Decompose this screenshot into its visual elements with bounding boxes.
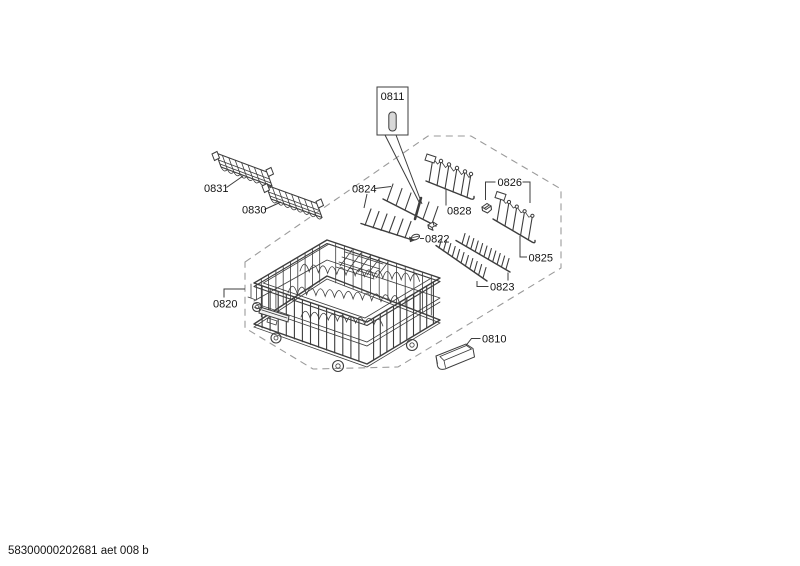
leader-line-0831 (227, 176, 244, 188)
exploded-parts-page: 0811 0831 0830 0824 (0, 0, 800, 566)
leader-line-0830 (265, 202, 282, 210)
part-label-0810: 0810 (482, 334, 506, 346)
part-0811-callout: 0811 (377, 87, 422, 204)
part-0820-basket: 0820 (213, 240, 440, 372)
part-label-0824: 0824 (352, 184, 376, 196)
part-0811-pin (389, 112, 396, 131)
part-label-0825: 0825 (529, 253, 553, 265)
part-label-0826: 0826 (498, 177, 522, 189)
leader-line-0811 (385, 135, 422, 204)
part-0824-dark-tine (415, 198, 421, 219)
part-label-0830: 0830 (242, 205, 266, 217)
part-0822-clips: 0822 (411, 222, 450, 246)
part-0830-folding-rack: 0830 (242, 184, 324, 220)
part-label-0820: 0820 (213, 299, 237, 311)
leader-line-0820 (224, 289, 245, 298)
footer-code: 58300000202681 aet 008 b (8, 545, 149, 557)
part-label-0823: 0823 (490, 282, 514, 294)
part-label-0811: 0811 (381, 91, 405, 103)
part-0828-folding-tine-row: 0828 (425, 154, 474, 218)
leader-line-0810 (466, 339, 481, 346)
exploded-parts-diagram: 0811 0831 0830 0824 (0, 0, 800, 566)
part-0825-folding-tine-row: 0825 (493, 192, 553, 265)
part-label-0831: 0831 (204, 183, 228, 195)
part-0810-tray: 0810 (436, 334, 506, 370)
part-label-0828: 0828 (447, 206, 471, 218)
